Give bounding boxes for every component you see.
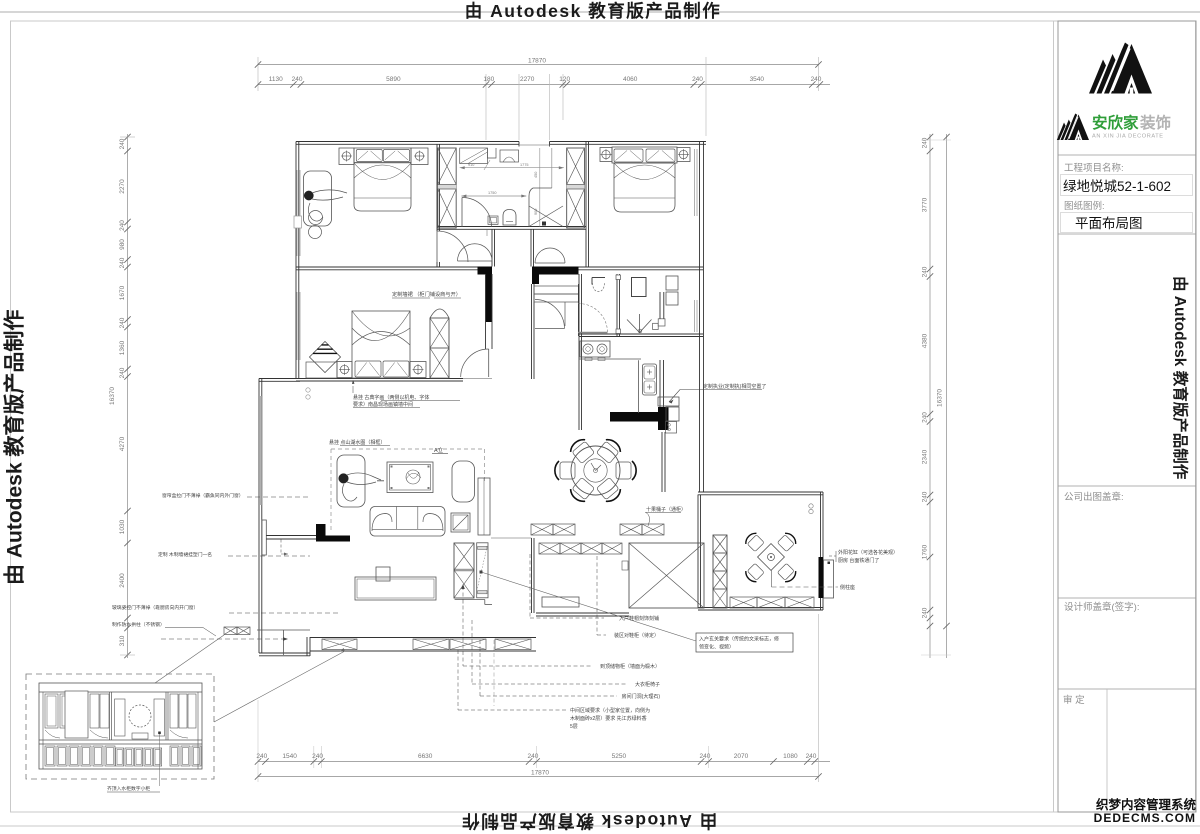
- svg-text:4380: 4380: [922, 333, 929, 348]
- svg-text:定制 木制墙裙挂塑门一名: 定制 木制墙裙挂塑门一名: [158, 551, 212, 558]
- svg-text:240: 240: [256, 753, 267, 760]
- svg-text:16370: 16370: [109, 387, 116, 405]
- svg-text:由 Autodesk 教育版产品制作: 由 Autodesk 教育版产品制作: [465, 1, 721, 21]
- svg-text:450: 450: [534, 172, 538, 178]
- svg-text:240: 240: [811, 76, 822, 83]
- svg-text:240: 240: [922, 137, 929, 148]
- svg-text:3770: 3770: [922, 197, 929, 212]
- svg-text:16370: 16370: [937, 389, 944, 407]
- svg-text:980: 980: [119, 239, 126, 250]
- svg-text:240: 240: [119, 367, 126, 378]
- svg-text:180: 180: [483, 76, 494, 83]
- svg-text:领变化、视频）: 领变化、视频）: [699, 644, 734, 651]
- svg-text:240: 240: [922, 266, 929, 277]
- svg-text:由 Autodesk 教育版产品制作: 由 Autodesk 教育版产品制作: [1171, 276, 1190, 480]
- svg-text:要求）南昌现场画镇墙中间: 要求）南昌现场画镇墙中间: [353, 401, 413, 408]
- svg-text:1775: 1775: [520, 163, 528, 167]
- svg-text:定制墙裙 （柜门铺设商与开）: 定制墙裙 （柜门铺设商与开）: [392, 290, 461, 298]
- svg-text:1760: 1760: [922, 544, 929, 559]
- svg-text:5890: 5890: [386, 76, 401, 83]
- svg-text:大衣柜椅子: 大衣柜椅子: [635, 681, 660, 688]
- svg-text:240: 240: [119, 220, 126, 231]
- svg-text:6630: 6630: [418, 753, 433, 760]
- svg-text:图纸图例:: 图纸图例:: [1064, 200, 1105, 212]
- svg-text:310: 310: [119, 635, 126, 646]
- svg-text:绿地悦城52-1-602: 绿地悦城52-1-602: [1063, 179, 1171, 194]
- svg-text:制作防水拱柱（不锈钢）: 制作防水拱柱（不锈钢）: [112, 621, 165, 628]
- svg-text:DEDECMS.COM: DEDECMS.COM: [1094, 811, 1196, 825]
- svg-text:910: 910: [468, 163, 474, 167]
- svg-text:240: 240: [922, 412, 929, 423]
- svg-text:240: 240: [806, 753, 817, 760]
- svg-text:悬挂 古典字画（两侧以机电、字体: 悬挂 古典字画（两侧以机电、字体: [353, 394, 429, 401]
- svg-text:木制面砖x2层）要求 先江苏绿料香: 木制面砖x2层）要求 先江苏绿料香: [570, 715, 647, 722]
- svg-text:1130: 1130: [269, 76, 283, 83]
- svg-text:240: 240: [922, 607, 929, 618]
- svg-text:2270: 2270: [119, 179, 126, 194]
- svg-text:240: 240: [119, 138, 126, 149]
- svg-text:玻璃姿控门不薄祿（靠厨房向内开门窗）: 玻璃姿控门不薄祿（靠厨房向内开门窗）: [112, 604, 198, 611]
- svg-text:织梦内容管理系统: 织梦内容管理系统: [1096, 797, 1197, 812]
- svg-text:由 Autodesk 教育版产品制作: 由 Autodesk 教育版产品制作: [461, 811, 717, 831]
- svg-text:240: 240: [119, 257, 126, 268]
- svg-text:公司出图盖章:: 公司出图盖章:: [1064, 491, 1124, 503]
- svg-text:审 定: 审 定: [1063, 694, 1085, 706]
- svg-text:2400: 2400: [119, 573, 126, 588]
- svg-text:入户玄关要求（传统的文采标志，修: 入户玄关要求（传统的文采标志，修: [699, 636, 779, 643]
- svg-text:4060: 4060: [623, 76, 638, 83]
- svg-text:120: 120: [559, 76, 570, 83]
- svg-text:中间区域要求（小型家位置，向侧为: 中间区域要求（小型家位置，向侧为: [570, 707, 650, 714]
- svg-text:17870: 17870: [528, 58, 546, 65]
- svg-text:1360: 1360: [119, 340, 126, 355]
- svg-text:2340: 2340: [922, 449, 929, 464]
- svg-text:定制执业(定制执)相同空置了: 定制执业(定制执)相同空置了: [703, 383, 766, 390]
- svg-text:到顶储物柜（墙面为椴木）: 到顶储物柜（墙面为椴木）: [600, 663, 660, 670]
- svg-text:十果桶子（通柜）: 十果桶子（通柜）: [646, 506, 686, 513]
- svg-text:1750: 1750: [488, 191, 496, 195]
- svg-text:安欣家: 安欣家: [1092, 113, 1139, 132]
- svg-text:工程项目名称:: 工程项目名称:: [1064, 162, 1124, 174]
- svg-text:240: 240: [527, 753, 538, 760]
- svg-text:5250: 5250: [612, 753, 627, 760]
- svg-text:240: 240: [119, 317, 126, 328]
- svg-text:1030: 1030: [119, 519, 126, 534]
- svg-text:窗帘盒拉门不薄祿（霸魚同内外门窗）: 窗帘盒拉门不薄祿（霸魚同内外门窗）: [162, 492, 244, 499]
- svg-text:1540: 1540: [282, 753, 297, 760]
- svg-text:厨房 台面铁通门了: 厨房 台面铁通门了: [838, 557, 879, 564]
- svg-text:240: 240: [699, 753, 710, 760]
- svg-text:4270: 4270: [119, 436, 126, 451]
- svg-text:2270: 2270: [520, 76, 535, 83]
- svg-text:齐顶入水柜数字小柜: 齐顶入水柜数字小柜: [107, 785, 150, 792]
- svg-text:1670: 1670: [119, 285, 126, 300]
- svg-text:1080: 1080: [783, 753, 798, 760]
- svg-text:由 Autodesk 教育版产品制作: 由 Autodesk 教育版产品制作: [3, 310, 27, 585]
- svg-text:设计师盖章(签字):: 设计师盖章(签字):: [1064, 601, 1139, 613]
- svg-text:2070: 2070: [734, 753, 749, 760]
- svg-text:240: 240: [922, 491, 929, 502]
- svg-text:侧柱座: 侧柱座: [840, 584, 855, 591]
- svg-text:240: 240: [312, 753, 323, 760]
- svg-text:房间门洞(大理石): 房间门洞(大理石): [622, 693, 661, 700]
- svg-text:平面布局图: 平面布局图: [1075, 216, 1143, 231]
- svg-text:装区对鞋柜（待定）: 装区对鞋柜（待定）: [614, 632, 659, 639]
- svg-text:悬挂 点山湖水图（相框）: 悬挂 点山湖水图（相框）: [329, 439, 385, 446]
- svg-text:17870: 17870: [531, 770, 549, 777]
- svg-text:240: 240: [292, 76, 303, 83]
- svg-text:3540: 3540: [750, 76, 765, 83]
- svg-text:装饰: 装饰: [1139, 113, 1171, 132]
- svg-text:A立: A立: [434, 446, 444, 454]
- svg-text:5层: 5层: [570, 724, 578, 730]
- svg-text:AN XIN JIA DECORATE: AN XIN JIA DECORATE: [1092, 134, 1164, 140]
- svg-text:外阳花缸（可选各花美观）: 外阳花缸（可选各花美观）: [838, 549, 898, 556]
- svg-text:240: 240: [692, 76, 703, 83]
